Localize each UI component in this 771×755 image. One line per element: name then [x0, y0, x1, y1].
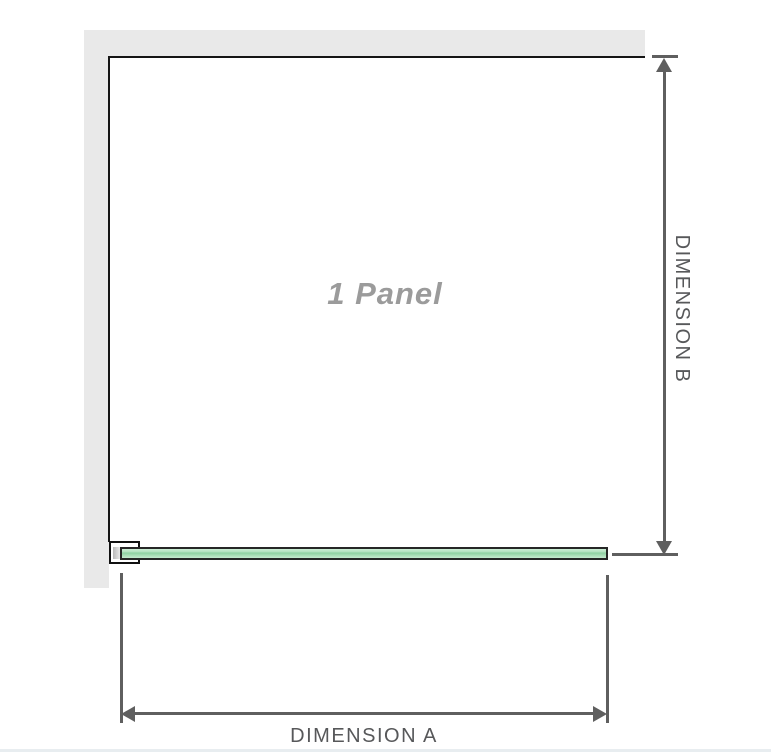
dimension-b-arrow-up-icon	[656, 58, 672, 72]
bottom-divider	[0, 749, 771, 752]
dimension-a-label: DIMENSION A	[214, 723, 514, 749]
dimension-b-label: DIMENSION B	[669, 209, 695, 409]
panel-count-label: 1 Panel	[250, 276, 520, 316]
wall-left-strip	[84, 30, 109, 588]
wall-top-strip	[84, 30, 645, 57]
dimension-a-left-extension-line	[120, 573, 123, 723]
dimension-diagram: 1 Panel DIMENSION B DIMENSION A	[0, 0, 771, 755]
dimension-b-line	[663, 69, 666, 544]
glass-panel-bar	[120, 547, 608, 560]
panel-outline-top	[108, 56, 645, 58]
dimension-a-arrow-left-icon	[121, 706, 135, 722]
dimension-b-arrow-down-icon	[656, 541, 672, 555]
dimension-a-right-extension-line	[606, 575, 609, 723]
dimension-a-arrow-right-icon	[593, 706, 607, 722]
dimension-a-line	[134, 712, 594, 715]
panel-outline-left	[108, 56, 110, 542]
